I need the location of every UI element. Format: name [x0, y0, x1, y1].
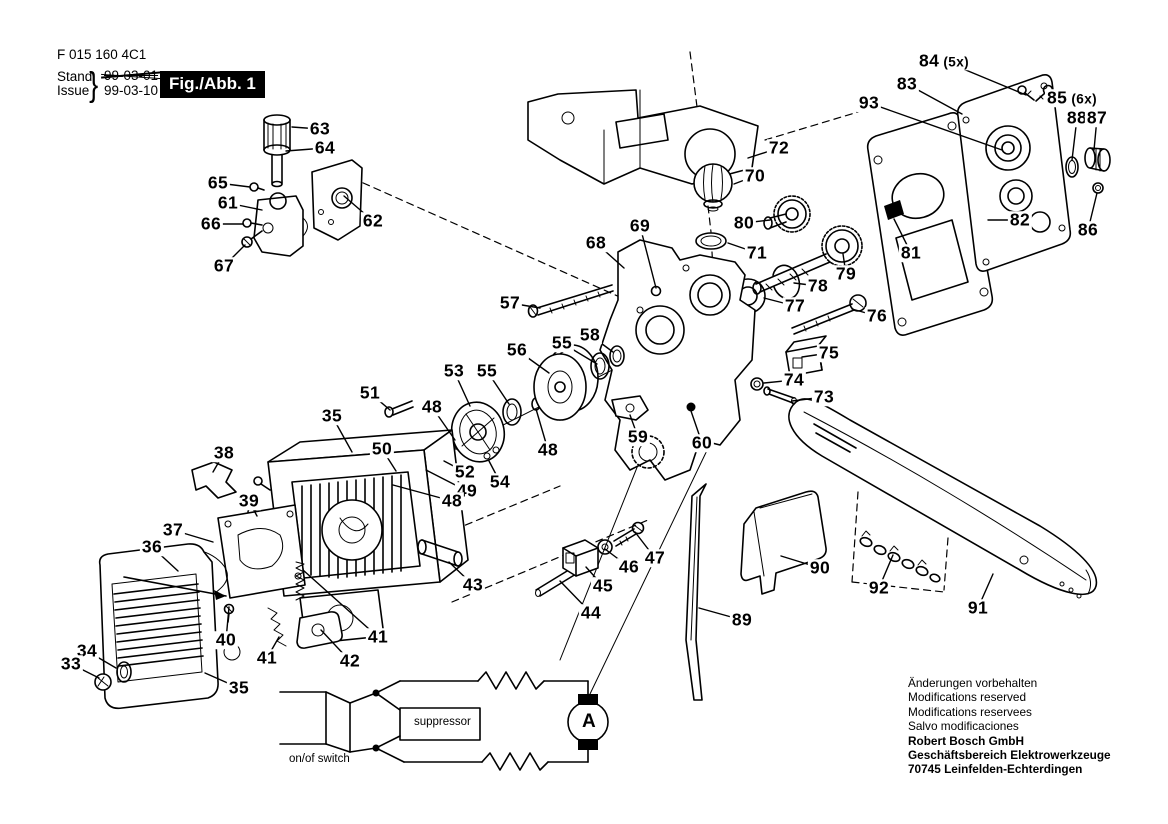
switch-label: on/of switch [289, 753, 350, 765]
drum-56 [534, 345, 598, 420]
part-callout-42: 42 [338, 652, 362, 670]
pin-65 [250, 183, 258, 191]
new-date: 99-03-10 [104, 83, 158, 98]
knob-70 [694, 164, 732, 211]
footer-line: Änderungen vorbehalten [908, 676, 1111, 690]
nut-60 [687, 403, 696, 412]
block-45 [563, 540, 598, 576]
footer-line: Modifications reservees [908, 705, 1111, 719]
part-callout-66: 66 [199, 215, 223, 233]
figure-label: Fig./Abb. 1 [160, 71, 265, 98]
part-callout-58: 58 [578, 326, 602, 344]
part-callout-77: 77 [783, 297, 807, 315]
part-callout-83: 83 [895, 75, 919, 93]
motor-symbol-label: A [582, 711, 596, 733]
footer-company: Robert Bosch GmbH [908, 734, 1111, 748]
pin-73 [764, 387, 797, 405]
part-callout-69: 69 [628, 217, 652, 235]
part-callout-68: 68 [584, 234, 608, 252]
part-callout-53: 53 [442, 362, 466, 380]
part-callout-40: 40 [214, 631, 238, 649]
part-callout-92: 92 [867, 579, 891, 597]
part-code: F 015 160 4C1 [57, 48, 146, 62]
ball-33 [95, 674, 111, 690]
part-callout-80: 80 [732, 214, 756, 232]
part-callout-76: 76 [865, 307, 889, 325]
part-callout-75: 75 [817, 344, 841, 362]
part-callout-57: 57 [498, 294, 522, 312]
part-callout-48: 48 [420, 398, 444, 416]
part-callout-86: 86 [1076, 221, 1100, 239]
part-callout-59: 59 [626, 428, 650, 446]
suppressor-label: suppressor [414, 716, 471, 728]
guard-parts [686, 484, 826, 700]
part-callout-52: 52 [453, 463, 477, 481]
part-callout-46: 46 [617, 558, 641, 576]
part-callout-71: 71 [745, 244, 769, 262]
part-callout-82: 82 [1008, 211, 1032, 229]
part-callout-33: 33 [59, 655, 83, 673]
part-callout-44: 44 [579, 604, 603, 622]
gearbox-housing [529, 164, 827, 480]
oring-71 [696, 233, 726, 249]
part-callout-36: 36 [140, 538, 164, 556]
front-shield [95, 544, 240, 708]
bearing-87 [1085, 148, 1110, 171]
oil-pump-assembly [242, 115, 362, 256]
part-callout-79: 79 [834, 265, 858, 283]
screw-57 [529, 285, 614, 317]
part-callout-72: 72 [767, 139, 791, 157]
part-callout-55: 55 [550, 334, 574, 352]
part-callout-38: 38 [212, 444, 236, 462]
footer-line: Modifications reserved [908, 690, 1111, 704]
part-callout-62: 62 [361, 212, 385, 230]
washer-74 [751, 378, 763, 390]
revision-dates: 99-03-01 99-03-10 [104, 68, 158, 98]
part-callout-74: 74 [782, 371, 806, 389]
guard-90 [741, 491, 826, 594]
guide-bar-group [789, 399, 1097, 598]
part-callout-70: 70 [743, 167, 767, 185]
part-callout-78: 78 [806, 277, 830, 295]
part-callout-48: 48 [536, 441, 560, 459]
brush-42 [297, 612, 342, 648]
brace-glyph: } [89, 66, 98, 105]
nut-86 [1093, 183, 1103, 193]
part-callout-45: 45 [591, 577, 615, 595]
footer-division: Geschäftsbereich Elektrowerkzeuge [908, 748, 1111, 762]
plate-37 [218, 505, 305, 598]
part-callout-67: 67 [212, 257, 236, 275]
part-callout-48: 48 [440, 492, 464, 510]
part-callout-56: 56 [505, 341, 529, 359]
part-callout-93: 93 [857, 94, 881, 112]
part-callout-35: 35 [227, 679, 251, 697]
part-callout-55: 55 [475, 362, 499, 380]
part-callout-37: 37 [161, 521, 185, 539]
old-date: 99-03-01 [104, 68, 158, 83]
part-callout-61: 61 [216, 194, 240, 212]
part-callout-51: 51 [358, 384, 382, 402]
footer-city: 70745 Leinfelden-Echterdingen [908, 762, 1111, 776]
chain-92 [859, 531, 941, 583]
part-callout-73: 73 [812, 388, 836, 406]
parts-diagram-page: F 015 160 4C1 Stand Issue } 99-03-01 99-… [0, 0, 1168, 824]
part-callout-65: 65 [206, 174, 230, 192]
part-callout-89: 89 [730, 611, 754, 629]
part-callout-81: 81 [899, 244, 923, 262]
part-callout-35: 35 [320, 407, 344, 425]
part-callout-60: 60 [690, 434, 714, 452]
part-callout-50: 50 [370, 440, 394, 458]
part-callout-41: 41 [366, 628, 390, 646]
clip-38 [192, 462, 236, 498]
part-callout-90: 90 [808, 559, 832, 577]
pump-body-61 [254, 196, 303, 256]
screw-47 [614, 523, 644, 547]
part-callout-54: 54 [488, 473, 512, 491]
part-callout-43: 43 [461, 576, 485, 594]
part-callout-47: 47 [643, 549, 667, 567]
part-callout-63: 63 [308, 120, 332, 138]
part-callout-84: 84 (5x) [917, 52, 971, 70]
part-callout-64: 64 [313, 139, 337, 157]
part-callout-91: 91 [966, 599, 990, 617]
footer-block: Änderungen vorbehalten Modifications res… [908, 676, 1111, 777]
part-callout-87: 87 [1085, 109, 1109, 127]
part-callout-85: 85 (6x) [1045, 89, 1099, 107]
part-callout-41: 41 [255, 649, 279, 667]
bracket-62 [312, 160, 362, 240]
footer-line: Salvo modificaciones [908, 719, 1111, 733]
part-callout-39: 39 [237, 492, 261, 510]
